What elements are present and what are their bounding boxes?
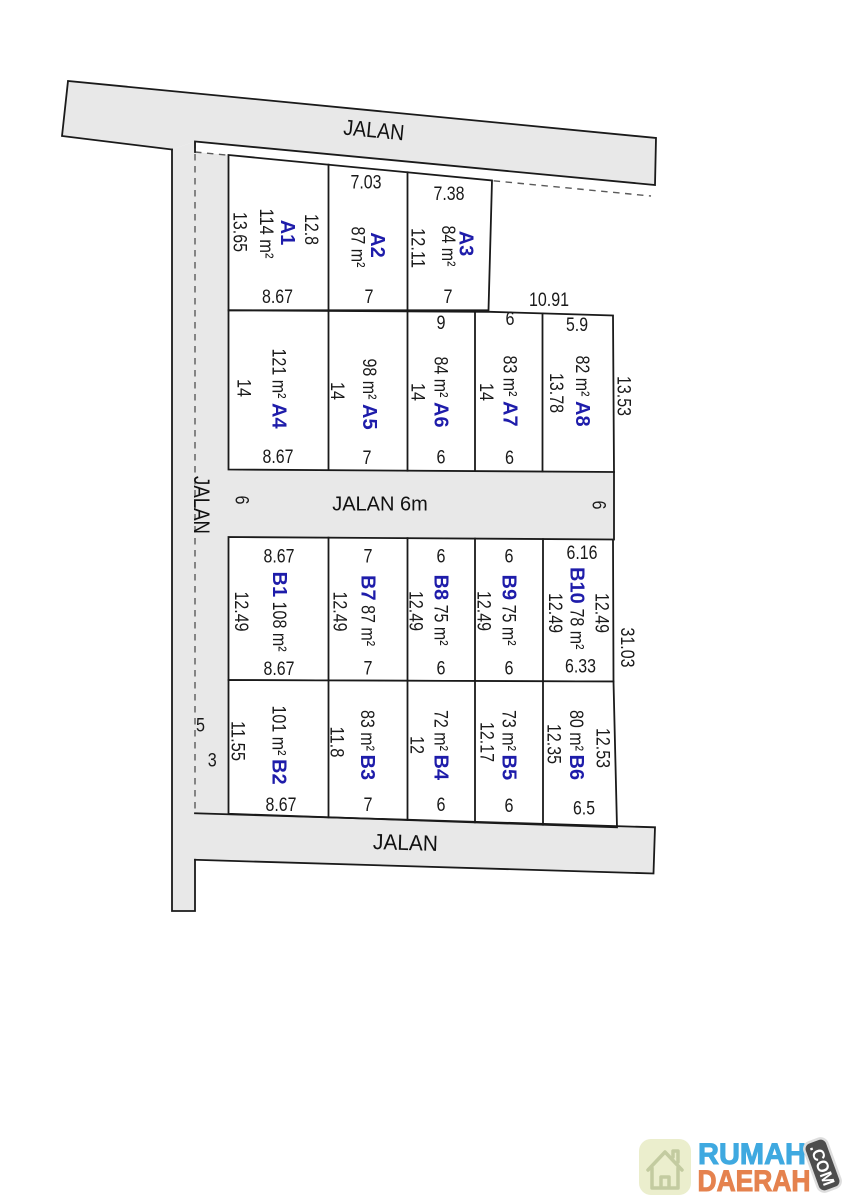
svg-text:B3: B3 [356, 755, 378, 781]
svg-text:A8: A8 [571, 401, 593, 427]
svg-text:6: 6 [437, 546, 446, 568]
svg-text:72 m²: 72 m² [430, 710, 452, 751]
svg-text:14: 14 [326, 382, 348, 400]
svg-text:B10: B10 [566, 567, 588, 604]
svg-text:11.8: 11.8 [326, 727, 348, 758]
svg-text:B6: B6 [565, 755, 587, 781]
svg-text:12.49: 12.49 [230, 592, 252, 632]
svg-text:9: 9 [437, 312, 446, 334]
svg-text:6: 6 [437, 794, 446, 816]
svg-text:8.67: 8.67 [264, 658, 295, 680]
svg-text:DAERAH: DAERAH [698, 1165, 811, 1198]
svg-text:8.67: 8.67 [264, 546, 295, 568]
svg-text:6: 6 [505, 447, 514, 469]
svg-text:75 m²: 75 m² [498, 605, 520, 646]
svg-text:84 m²: 84 m² [430, 357, 452, 398]
svg-text:6.16: 6.16 [567, 542, 598, 564]
svg-text:83 m²: 83 m² [356, 710, 378, 751]
svg-text:7: 7 [364, 658, 373, 680]
svg-text:78 m²: 78 m² [566, 609, 588, 650]
svg-text:5: 5 [196, 715, 205, 737]
svg-text:6: 6 [506, 308, 515, 330]
svg-text:12.49: 12.49 [591, 593, 613, 633]
svg-text:7.38: 7.38 [434, 183, 465, 205]
svg-text:87 m²: 87 m² [357, 605, 379, 646]
svg-text:7: 7 [365, 286, 374, 308]
svg-text:12.49: 12.49 [329, 592, 351, 632]
svg-text:10.91: 10.91 [529, 289, 569, 311]
svg-text:8.67: 8.67 [266, 794, 297, 816]
svg-text:JALAN: JALAN [189, 476, 214, 534]
svg-text:12.49: 12.49 [405, 591, 427, 631]
svg-text:B2: B2 [268, 759, 290, 785]
svg-text:80 m²: 80 m² [565, 710, 587, 751]
svg-text:7: 7 [364, 546, 373, 568]
svg-text:B5: B5 [498, 755, 520, 781]
svg-text:A2: A2 [366, 232, 388, 258]
svg-text:JALAN: JALAN [373, 829, 439, 856]
svg-text:13.65: 13.65 [229, 212, 251, 252]
svg-text:83 m²: 83 m² [499, 356, 521, 397]
svg-text:87 m²: 87 m² [347, 227, 369, 268]
svg-text:6: 6 [231, 496, 253, 505]
svg-text:82 m²: 82 m² [571, 356, 593, 397]
svg-text:12.17: 12.17 [476, 722, 498, 762]
svg-text:B4: B4 [430, 755, 452, 781]
svg-text:14: 14 [233, 379, 255, 397]
svg-text:98 m²: 98 m² [358, 359, 380, 400]
svg-text:B8: B8 [430, 575, 452, 601]
svg-text:7.03: 7.03 [351, 172, 382, 194]
svg-text:6: 6 [505, 658, 514, 680]
svg-text:114 m²: 114 m² [255, 209, 277, 259]
svg-text:6: 6 [437, 447, 446, 469]
svg-text:75 m²: 75 m² [430, 605, 452, 646]
svg-text:6.5: 6.5 [573, 798, 595, 820]
svg-text:14: 14 [475, 383, 497, 401]
svg-text:A4: A4 [268, 403, 290, 429]
svg-text:A6: A6 [430, 402, 452, 428]
svg-text:12.35: 12.35 [543, 724, 565, 764]
svg-text:7: 7 [364, 794, 373, 816]
svg-text:7: 7 [363, 447, 372, 469]
svg-text:A1: A1 [276, 220, 298, 246]
svg-text:108 m²: 108 m² [268, 602, 290, 652]
svg-text:12.11: 12.11 [407, 228, 429, 268]
svg-text:5.9: 5.9 [566, 314, 588, 336]
svg-text:121 m²: 121 m² [268, 349, 290, 399]
svg-text:JALAN 6m: JALAN 6m [332, 494, 428, 516]
svg-text:11.55: 11.55 [227, 721, 249, 761]
svg-text:73 m²: 73 m² [498, 710, 520, 751]
svg-text:6.33: 6.33 [565, 656, 596, 678]
svg-text:B1: B1 [268, 572, 290, 598]
svg-text:12: 12 [406, 736, 428, 754]
svg-text:A3: A3 [455, 231, 477, 257]
svg-text:13.53: 13.53 [613, 376, 635, 416]
svg-text:8.67: 8.67 [263, 446, 294, 468]
svg-text:14: 14 [407, 383, 429, 401]
svg-text:7: 7 [444, 286, 453, 308]
svg-text:31.03: 31.03 [616, 628, 638, 668]
svg-text:3: 3 [208, 750, 217, 772]
svg-text:6: 6 [588, 501, 610, 510]
svg-text:12.53: 12.53 [592, 728, 614, 768]
svg-text:B7: B7 [357, 575, 379, 601]
svg-text:6: 6 [437, 658, 446, 680]
svg-text:101 m²: 101 m² [268, 706, 290, 756]
svg-text:6: 6 [505, 795, 514, 817]
svg-text:A7: A7 [499, 401, 521, 427]
svg-text:B9: B9 [498, 575, 520, 601]
svg-text:12.49: 12.49 [473, 591, 495, 631]
svg-text:13.78: 13.78 [545, 373, 567, 413]
svg-text:A5: A5 [358, 404, 380, 430]
svg-text:6: 6 [505, 546, 514, 568]
svg-text:12.8: 12.8 [300, 214, 322, 245]
svg-text:8.67: 8.67 [262, 286, 293, 308]
svg-text:12.49: 12.49 [544, 593, 566, 633]
